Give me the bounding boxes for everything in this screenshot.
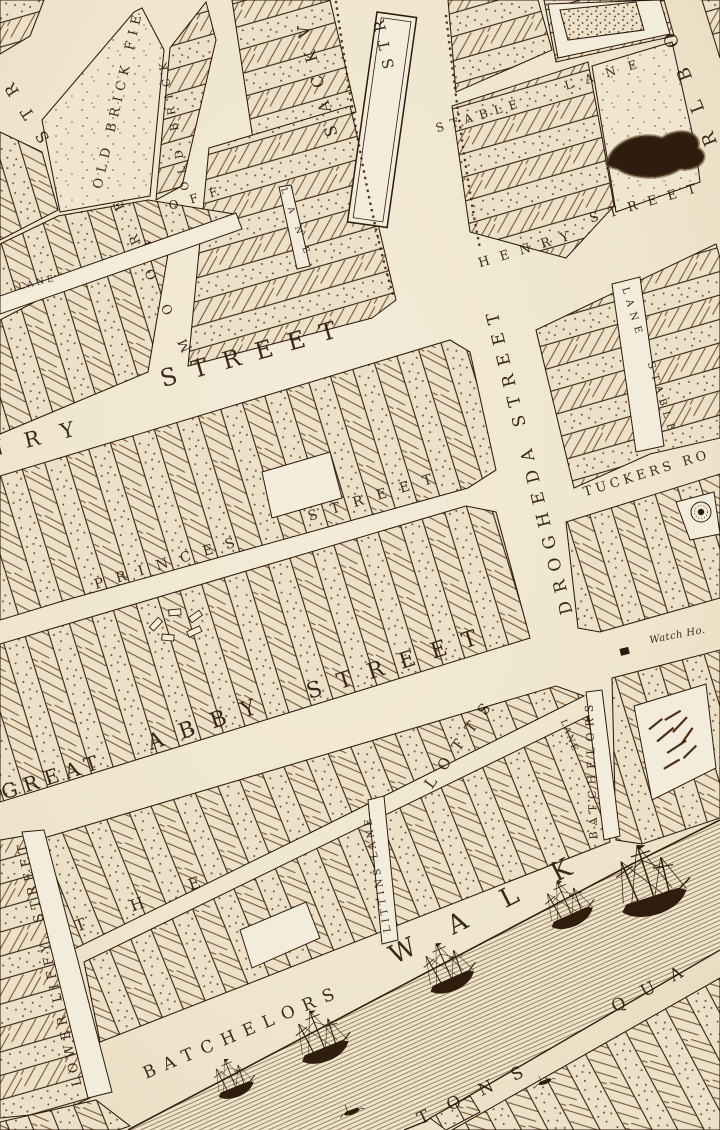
street-label-watch-ho: Watch Ho. [649, 625, 707, 647]
map-svg: STROLD BRICK FIEOLD BRICKOFFLANEMOORELAN… [0, 0, 720, 1130]
street-label-str: STR [0, 65, 53, 146]
watch-house-icon [619, 647, 629, 656]
engraved-map-canvas: STROLD BRICK FIEOLD BRICKOFFLANEMOORELAN… [0, 0, 720, 1130]
circular-emblem-icon [691, 502, 711, 522]
